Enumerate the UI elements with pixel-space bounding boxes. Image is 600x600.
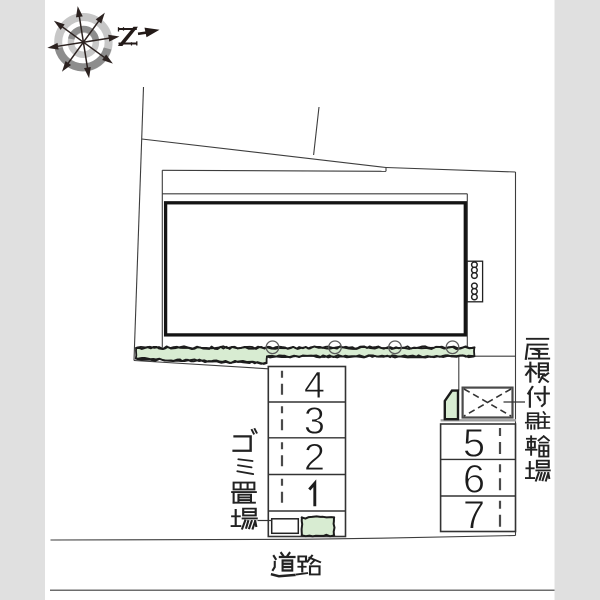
svg-text:7: 7	[463, 493, 485, 537]
svg-text:2: 2	[304, 437, 325, 479]
